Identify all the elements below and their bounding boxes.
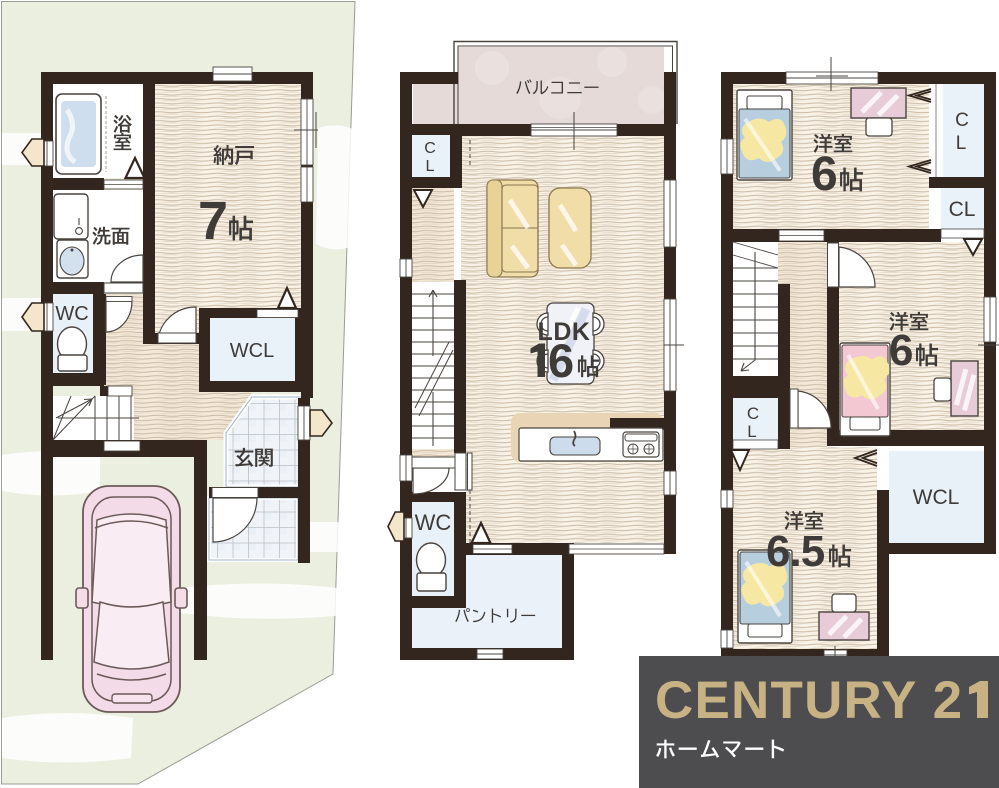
svg-text:C: C bbox=[955, 110, 969, 131]
svg-text:6.5: 6.5 bbox=[766, 527, 825, 576]
svg-text:C: C bbox=[424, 140, 436, 157]
svg-text:L: L bbox=[956, 133, 967, 154]
svg-text:WC: WC bbox=[415, 510, 452, 535]
svg-text:CENTURY 2: CENTURY 2 bbox=[655, 671, 963, 730]
svg-text:WCL: WCL bbox=[230, 340, 274, 362]
svg-text:CL: CL bbox=[949, 198, 976, 221]
svg-text:L: L bbox=[747, 422, 756, 441]
svg-text:C: C bbox=[747, 404, 759, 423]
svg-text:6: 6 bbox=[811, 148, 838, 201]
svg-text:WC: WC bbox=[55, 303, 88, 325]
svg-text:6: 6 bbox=[548, 334, 574, 387]
svg-text:WCL: WCL bbox=[913, 486, 960, 509]
svg-text:6: 6 bbox=[889, 326, 913, 375]
svg-text:7: 7 bbox=[198, 191, 228, 251]
svg-text:L: L bbox=[426, 158, 435, 175]
